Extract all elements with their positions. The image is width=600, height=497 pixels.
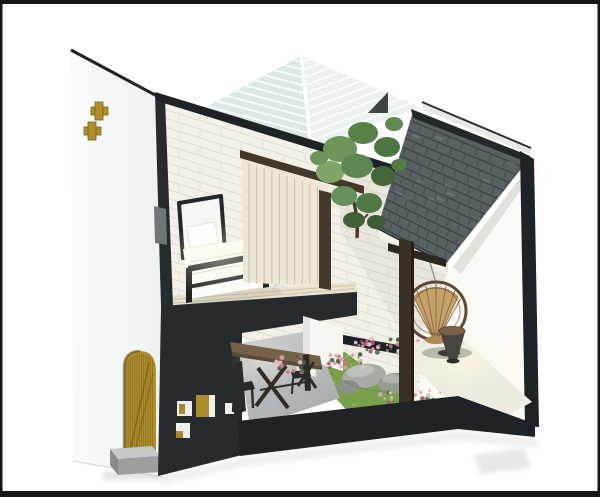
frame-bottom [0,491,600,497]
house-cutaway-render [0,0,600,497]
stone-doorstep [110,446,160,475]
niche-4-brass [176,431,183,438]
frame-left [0,0,3,497]
niche-2-white-edge [209,395,215,417]
cut-strip-gray-patch [154,206,167,245]
timber-post [319,190,331,290]
doorstep-front [118,456,160,475]
render-stage [0,0,600,497]
frame-top [0,0,600,4]
roof-post-shade [411,241,414,418]
cone-base [447,359,460,364]
niche-1-brass [179,404,185,414]
left-gable-wall [71,50,162,477]
cone-top [439,327,465,336]
